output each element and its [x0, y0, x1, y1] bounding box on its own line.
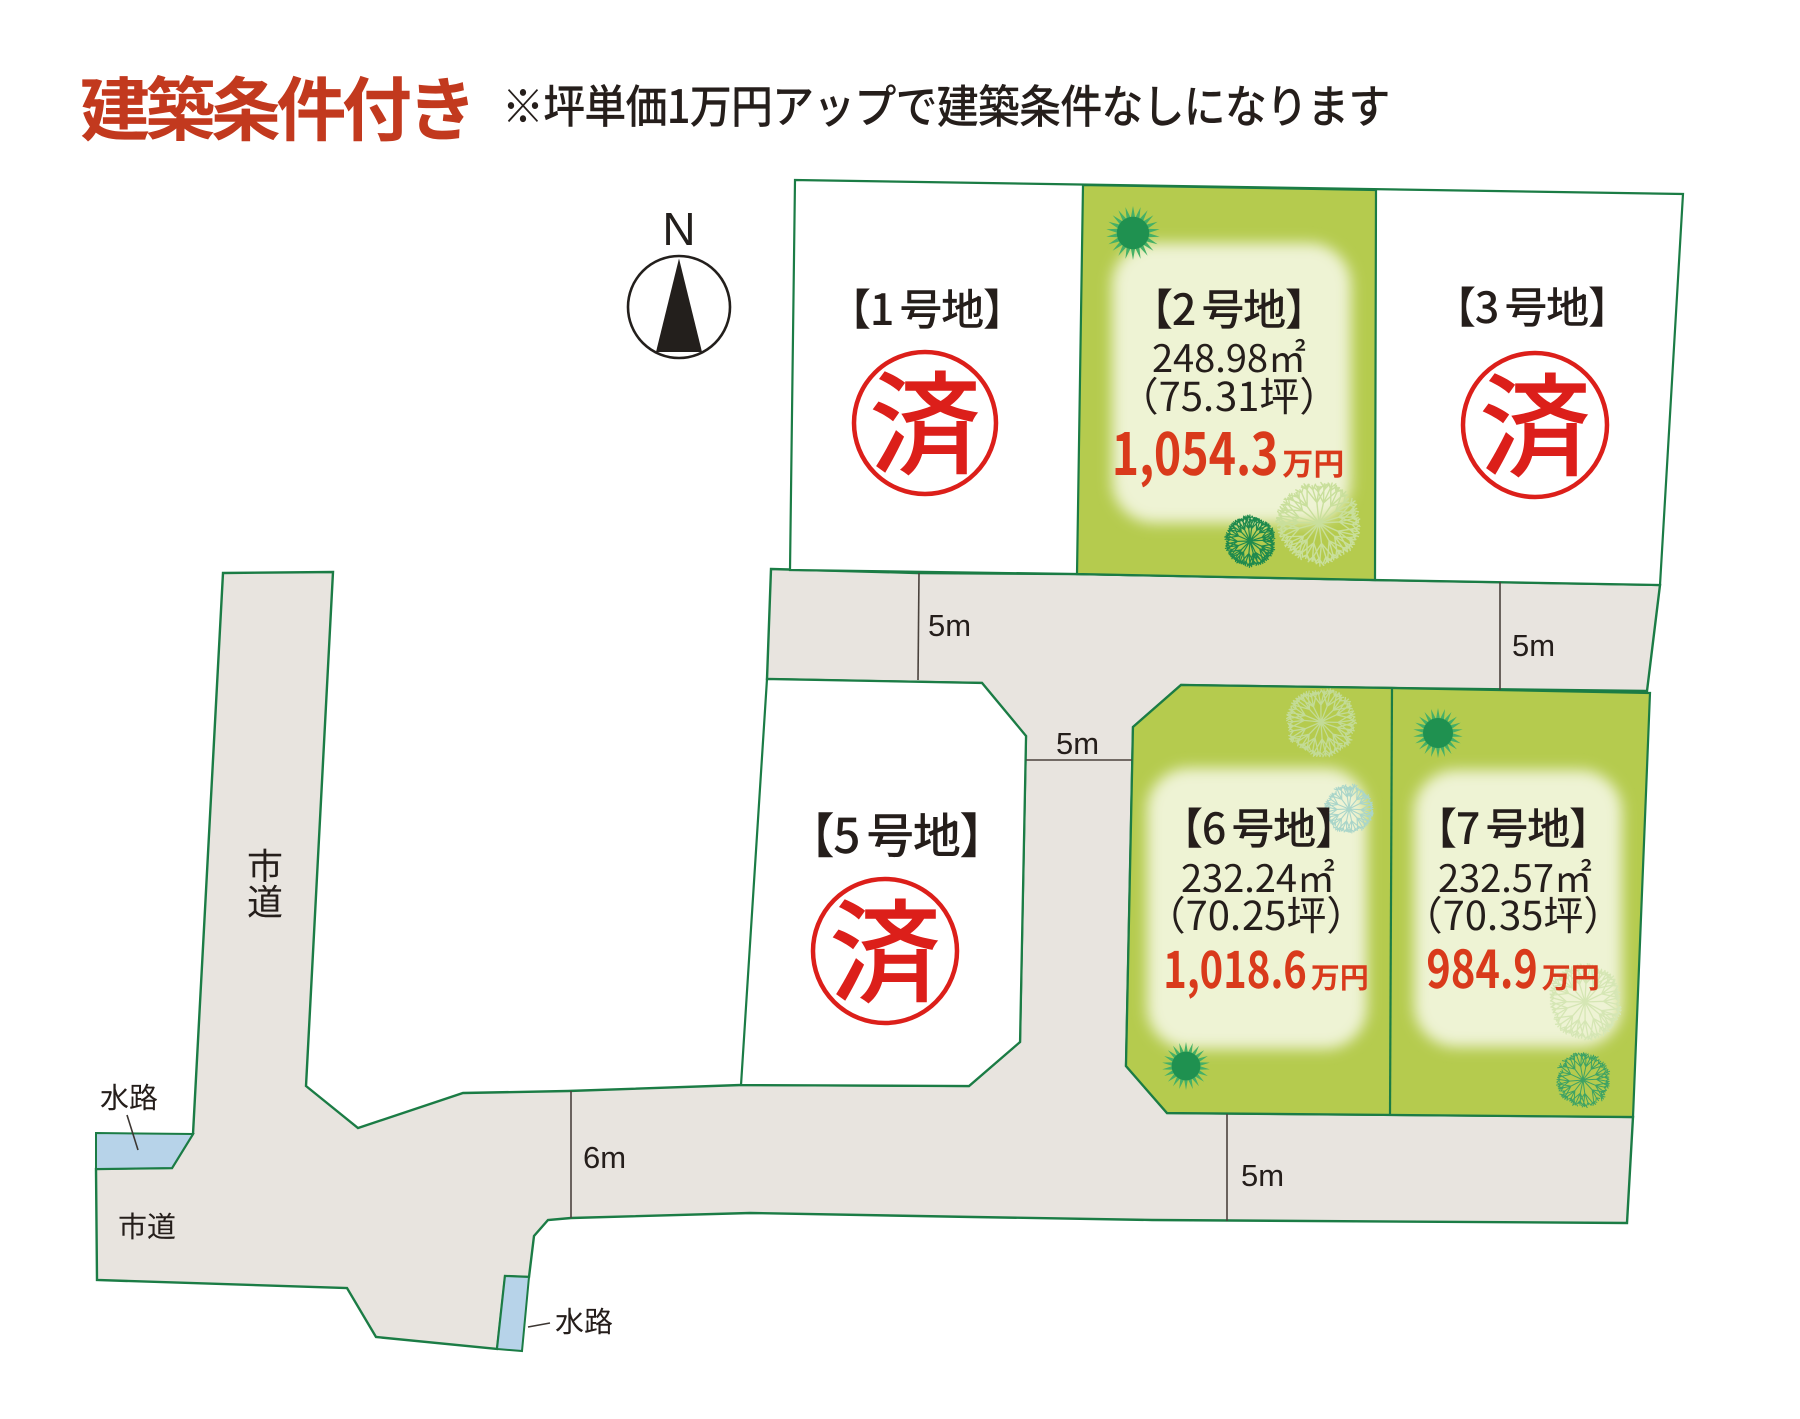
- svg-text:5m: 5m: [928, 608, 971, 643]
- svg-text:5m: 5m: [1241, 1158, 1284, 1193]
- svg-text:6m: 6m: [583, 1140, 626, 1175]
- svg-text:5m: 5m: [1056, 726, 1099, 761]
- svg-text:N: N: [662, 203, 695, 255]
- svg-text:5m: 5m: [1512, 628, 1555, 663]
